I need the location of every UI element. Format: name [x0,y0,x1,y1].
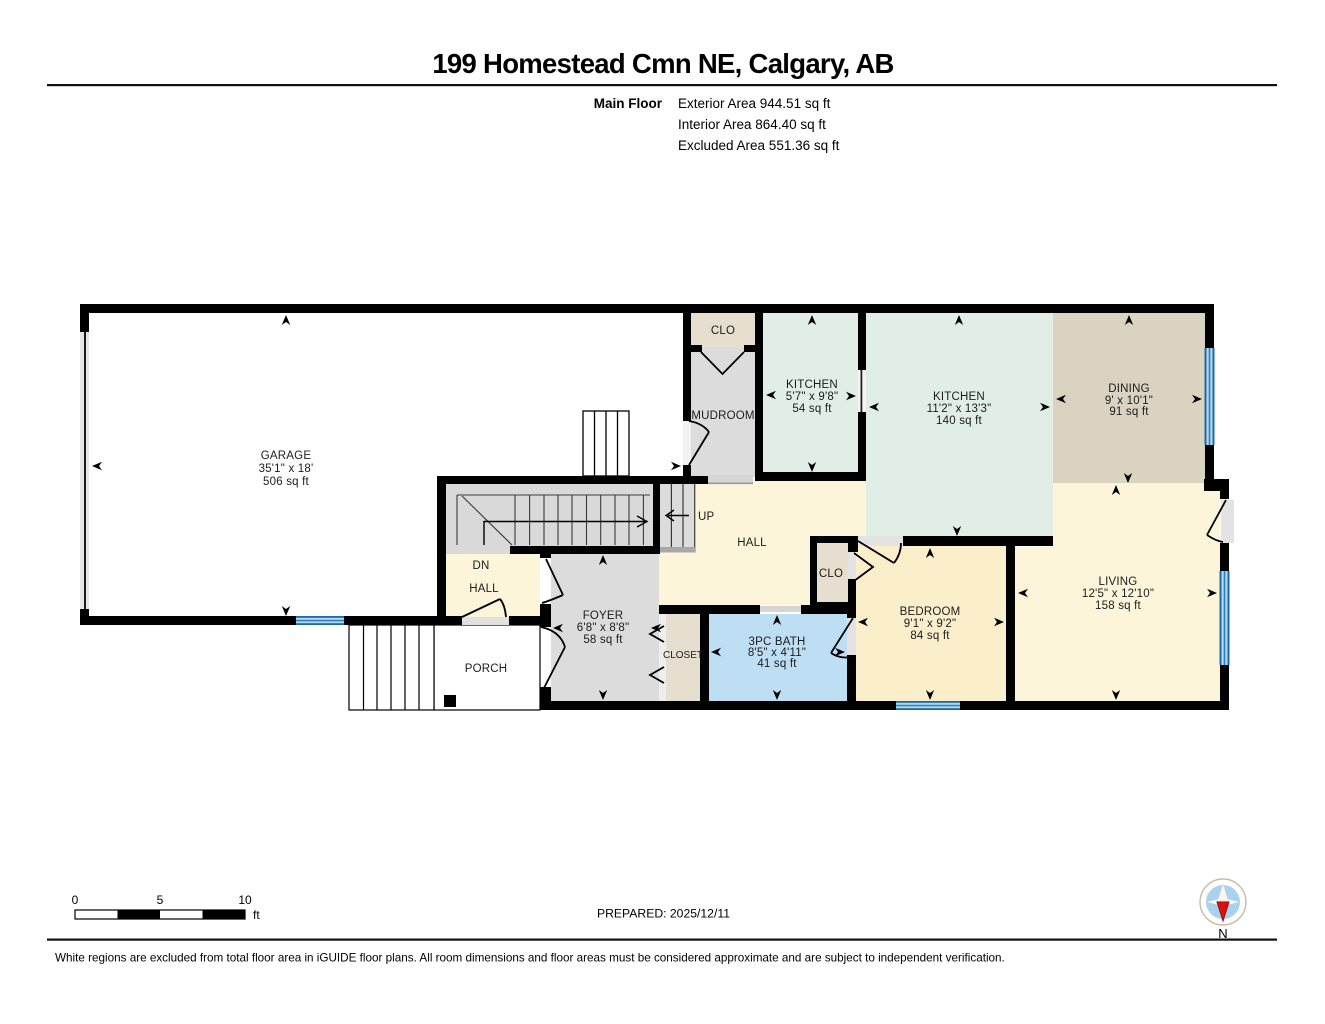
svg-text:FOYER: FOYER [583,610,624,622]
svg-text:11'2" x 13'3": 11'2" x 13'3" [927,403,992,415]
svg-text:35'1" x 18': 35'1" x 18' [259,463,314,475]
svg-text:Interior Area 864.40 sq ft: Interior Area 864.40 sq ft [678,117,826,132]
svg-text:KITCHEN: KITCHEN [933,391,985,403]
svg-text:506 sq ft: 506 sq ft [263,476,310,488]
svg-text:5: 5 [157,893,164,907]
svg-text:84 sq ft: 84 sq ft [910,630,950,642]
svg-text:LIVING: LIVING [1099,576,1138,588]
svg-text:UP: UP [698,511,715,523]
svg-text:PORCH: PORCH [465,663,508,675]
svg-text:CLO: CLO [819,568,843,580]
svg-text:KITCHEN: KITCHEN [786,379,838,391]
svg-text:41 sq ft: 41 sq ft [757,658,797,670]
svg-text:CLO: CLO [711,325,735,337]
svg-text:Exterior Area 944.51 sq ft: Exterior Area 944.51 sq ft [678,96,831,111]
svg-text:GARAGE: GARAGE [261,450,312,462]
svg-text:MUDROOM: MUDROOM [691,410,754,422]
svg-text:Excluded Area 551.36 sq ft: Excluded Area 551.36 sq ft [678,138,840,153]
svg-text:12'5" x 12'10": 12'5" x 12'10" [1082,588,1154,600]
svg-text:DN: DN [472,560,489,572]
svg-text:HALL: HALL [469,583,499,595]
svg-text:HALL: HALL [737,537,767,549]
svg-text:58 sq ft: 58 sq ft [583,634,623,646]
svg-text:199 Homestead Cmn NE, Calgary,: 199 Homestead Cmn NE, Calgary, AB [432,48,893,79]
svg-text:White regions are excluded fro: White regions are excluded from total fl… [55,952,1005,965]
svg-text:0: 0 [72,893,79,907]
svg-text:PREPARED: 2025/12/11: PREPARED: 2025/12/11 [597,907,730,921]
svg-text:CLOSET: CLOSET [663,650,703,661]
svg-text:ft: ft [253,908,260,922]
svg-text:BEDROOM: BEDROOM [900,606,961,618]
svg-text:54 sq ft: 54 sq ft [792,403,832,415]
svg-text:6'8" x 8'8": 6'8" x 8'8" [577,622,629,634]
svg-text:Main Floor: Main Floor [594,96,663,111]
svg-text:9'1" x 9'2": 9'1" x 9'2" [904,618,956,630]
svg-text:5'7" x 9'8": 5'7" x 9'8" [786,391,838,403]
svg-text:91 sq ft: 91 sq ft [1109,406,1149,418]
svg-text:10: 10 [238,893,252,907]
svg-text:140 sq ft: 140 sq ft [936,415,983,427]
svg-text:DINING: DINING [1108,383,1149,395]
svg-text:158 sq ft: 158 sq ft [1095,600,1142,612]
